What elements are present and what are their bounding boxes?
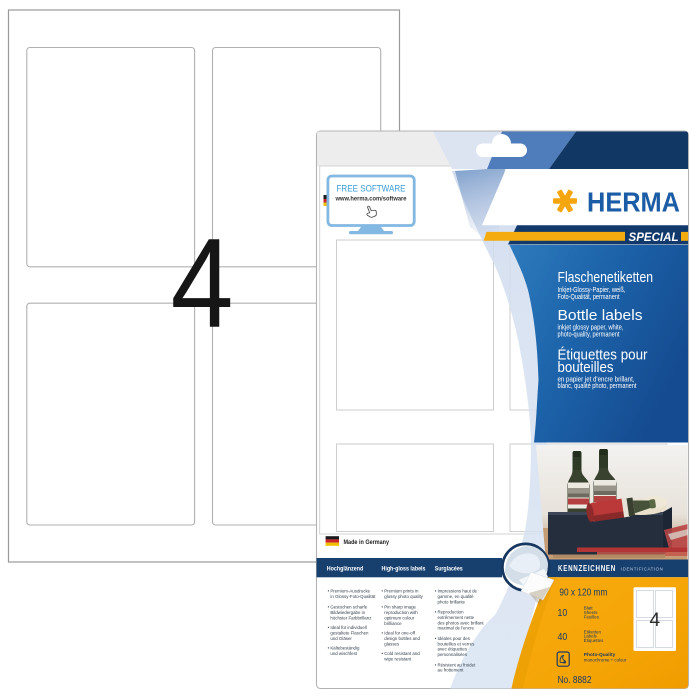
svg-text:• Idéales pour des: • Idéales pour des: [435, 636, 471, 641]
svg-text:Feuilles: Feuilles: [584, 614, 600, 619]
svg-text:maximal de l'encre: maximal de l'encre: [438, 626, 475, 631]
svg-text:au frottement: au frottement: [438, 668, 465, 673]
svg-text:4: 4: [171, 213, 234, 355]
svg-text:photo brillante: photo brillante: [438, 599, 466, 604]
svg-text:bouteilles: bouteilles: [558, 360, 614, 376]
svg-text:photo-quality, permanent: photo-quality, permanent: [558, 331, 620, 338]
svg-text:FREE SOFTWARE: FREE SOFTWARE: [337, 184, 406, 195]
svg-text:blanc, qualité photo, permanen: blanc, qualité photo, permanent: [558, 383, 637, 390]
svg-text:• Résistent au froidet: • Résistent au froidet: [435, 662, 476, 667]
svg-text:gamme, en qualité: gamme, en qualité: [438, 594, 475, 599]
svg-text:Bottle labels: Bottle labels: [558, 308, 643, 324]
svg-text:wipe resistant: wipe resistant: [384, 656, 412, 661]
svg-text:• Impressions haut de: • Impressions haut de: [435, 589, 478, 594]
svg-text:SPECIAL: SPECIAL: [629, 230, 679, 244]
svg-text:• Ideal für individuell: • Ideal für individuell: [328, 625, 367, 630]
svg-text:Surglacées: Surglacées: [435, 565, 463, 572]
svg-text:• Gestochen scharfe: • Gestochen scharfe: [328, 605, 368, 610]
svg-text:Flaschenetiketten: Flaschenetiketten: [558, 270, 654, 286]
svg-text:Bildwiedergabe in: Bildwiedergabe in: [330, 610, 365, 615]
svg-text:Made in Germany: Made in Germany: [344, 539, 390, 546]
svg-text:4: 4: [650, 610, 661, 631]
svg-text:des photos avec brillant: des photos avec brillant: [438, 620, 485, 625]
svg-text:Hochglänzend: Hochglänzend: [327, 565, 364, 572]
svg-text:in Glossy-Foto-Qualität: in Glossy-Foto-Qualität: [330, 594, 376, 599]
svg-text:IDENTIFICATION: IDENTIFICATION: [621, 567, 663, 572]
svg-text:extrêmement nette: extrêmement nette: [438, 615, 475, 620]
svg-text:HERMA: HERMA: [587, 187, 680, 218]
svg-text:brilliance: brilliance: [384, 621, 402, 626]
svg-text:Foto-Qualität, permanent: Foto-Qualität, permanent: [558, 294, 620, 301]
svg-text:glasses: glasses: [384, 641, 400, 646]
svg-text:personnalisées: personnalisées: [438, 652, 468, 657]
svg-text:und wischfest: und wischfest: [330, 651, 357, 656]
svg-text:High-gloss labels: High-gloss labels: [382, 565, 426, 572]
svg-text:• Premium-Ausdrucke: • Premium-Ausdrucke: [328, 589, 371, 594]
svg-text:bouteilles et verres: bouteilles et verres: [438, 641, 476, 646]
svg-text:10: 10: [558, 607, 568, 619]
svg-text:• Ideal for one-off: • Ideal for one-off: [382, 631, 416, 636]
svg-text:No. 8882: No. 8882: [558, 674, 592, 686]
svg-text:avec étiquettes: avec étiquettes: [438, 647, 468, 652]
svg-text:gestaltete Flaschen: gestaltete Flaschen: [330, 631, 369, 636]
svg-text:www.herma.com/software: www.herma.com/software: [335, 196, 407, 203]
svg-text:KENNZEICHNEN: KENNZEICHNEN: [558, 564, 616, 573]
svg-text:• Reproduction: • Reproduction: [435, 610, 464, 615]
svg-text:• Premium prints in: • Premium prints in: [382, 589, 419, 594]
svg-text:Étiquettes: Étiquettes: [584, 638, 604, 643]
svg-text:• Cold resistant and: • Cold resistant and: [382, 651, 421, 656]
svg-text:reproduction with: reproduction with: [384, 610, 418, 615]
svg-text:glossy photo quality: glossy photo quality: [384, 594, 423, 599]
svg-text:und Gläser: und Gläser: [330, 636, 352, 641]
svg-text:höchster Farbbrillanz: höchster Farbbrillanz: [330, 616, 371, 621]
svg-text:design bottles and: design bottles and: [384, 636, 420, 641]
svg-text:Inkjet-Glossy-Papier, weiß,: Inkjet-Glossy-Papier, weiß,: [558, 287, 626, 294]
svg-text:monochrome + colour: monochrome + colour: [584, 657, 627, 662]
svg-text:• Kältebeständig: • Kältebeständig: [328, 646, 360, 651]
svg-text:40: 40: [558, 631, 568, 643]
svg-text:90 x 120 mm: 90 x 120 mm: [559, 586, 607, 598]
svg-text:• Pin sharp image: • Pin sharp image: [382, 605, 417, 610]
svg-text:optimum colour: optimum colour: [384, 616, 415, 621]
